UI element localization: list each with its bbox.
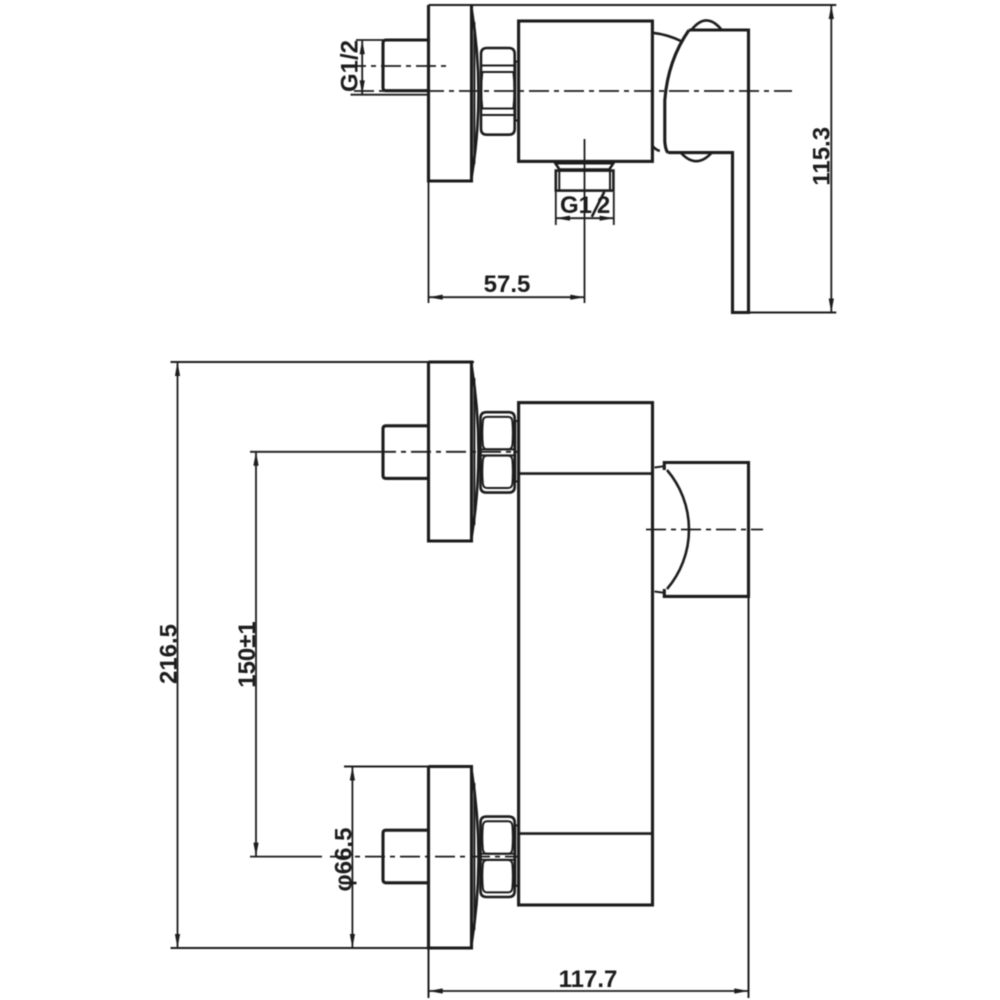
svg-text:115.3: 115.3 (809, 127, 836, 186)
svg-text:57.5: 57.5 (484, 271, 531, 298)
svg-text:G1: G1 (560, 192, 592, 219)
svg-text:φ66.5: φ66.5 (331, 828, 358, 892)
svg-text:G1/2: G1/2 (337, 40, 364, 92)
svg-text:150±1: 150±1 (234, 621, 261, 688)
svg-text:216.5: 216.5 (156, 624, 183, 684)
svg-text:117.7: 117.7 (559, 966, 618, 993)
